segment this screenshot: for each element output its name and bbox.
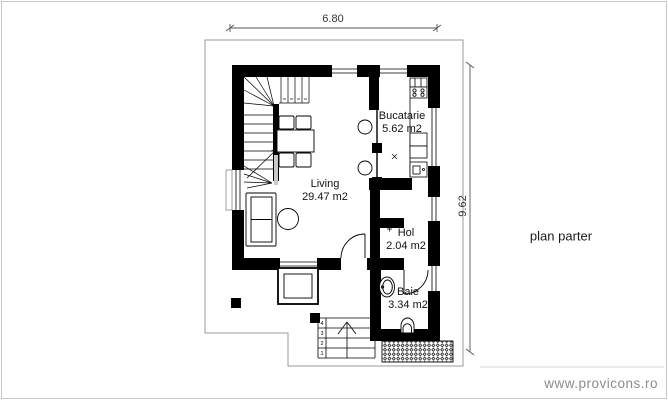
- room-label-bucatarie: Bucatarie 5.62 m2: [379, 110, 425, 136]
- entrance-door-arc: [341, 234, 365, 258]
- floor-plan-page: 4 3 2 1 Living 29.47 m2 Bucatarie 5.62 m…: [0, 0, 668, 400]
- dining-chair: [279, 153, 294, 167]
- dining-chair: [296, 116, 311, 129]
- sofa: [246, 193, 276, 246]
- plan-title: plan parter: [530, 229, 592, 244]
- toilet-icon: [401, 318, 414, 333]
- floor-symbol: [392, 154, 397, 159]
- svg-text:1: 1: [320, 351, 323, 357]
- svg-text:3: 3: [320, 331, 323, 337]
- top-dimension-label: 6.80: [322, 13, 343, 25]
- room-name: Baie: [388, 286, 428, 299]
- coffee-table: [278, 209, 299, 230]
- room-label-hol: Hol 2.04 m2: [386, 227, 426, 253]
- steps-up-arrow: [338, 322, 356, 358]
- room-area: 3.34 m2: [388, 299, 428, 312]
- room-name: Hol: [386, 227, 426, 240]
- room-label-baie: Baie 3.34 m2: [388, 286, 428, 312]
- room-area: 29.47 m2: [302, 191, 348, 204]
- room-area: 5.62 m2: [379, 123, 425, 136]
- dining-table: [277, 130, 314, 152]
- room-name: Living: [302, 178, 348, 191]
- kitchen-sink-icon: [410, 162, 427, 177]
- room-name: Bucatarie: [379, 110, 425, 123]
- watermark: www.provicons.ro: [544, 376, 658, 391]
- dining-chair: [296, 153, 311, 167]
- stove-icon: [410, 78, 427, 98]
- terrace-hatch: [382, 341, 453, 362]
- room-label-living: Living 29.47 m2: [302, 178, 348, 204]
- stair-direction-arrow: [247, 149, 277, 178]
- entrance-steps: 4 3 2 1: [318, 318, 375, 358]
- svg-text:4: 4: [320, 321, 323, 327]
- right-dimension-label: 9.62: [457, 195, 469, 216]
- dining-chair: [279, 116, 294, 129]
- chimney: [278, 268, 318, 304]
- svg-text:2: 2: [320, 341, 323, 347]
- step-numbers: 4 3 2 1: [320, 321, 323, 357]
- dining-set: [277, 116, 314, 167]
- room-area: 2.04 m2: [386, 240, 426, 253]
